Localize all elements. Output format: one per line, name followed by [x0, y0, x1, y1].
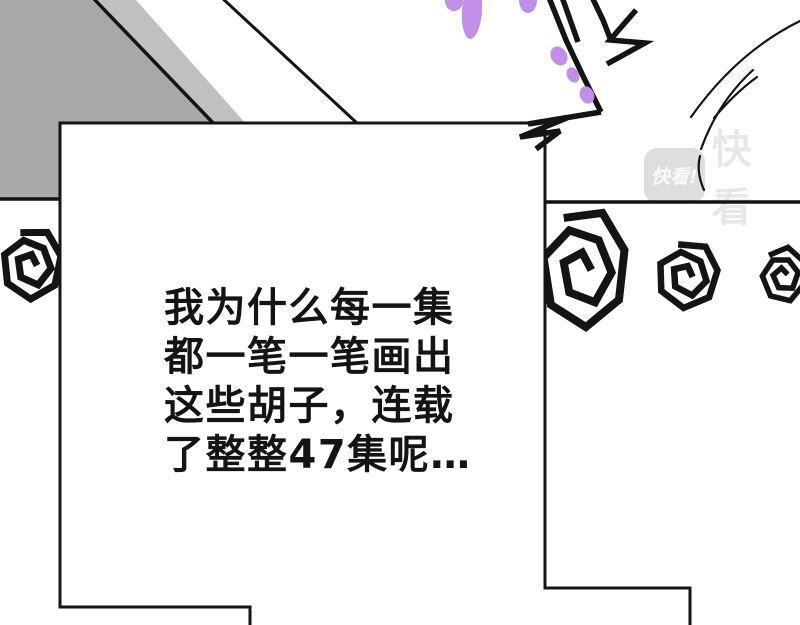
spiral-icon [1, 228, 62, 301]
spiral-icon [654, 239, 721, 313]
paint-splash [460, 0, 484, 40]
speech-line: 都一笔一笔画出 [164, 333, 474, 382]
brush-stroke-shape [520, 0, 645, 149]
spiral-icon [544, 213, 625, 327]
diagonal-panel-border [221, 0, 358, 124]
spiral-icon [758, 244, 800, 307]
speech-line: 了整整47集呢… [164, 431, 474, 480]
speech-text: 我为什么每一集 都一笔一笔画出 这些胡子，连载 了整整47集呢… [164, 284, 474, 480]
whisker-lines [691, 21, 800, 190]
speech-line: 我为什么每一集 [164, 284, 474, 333]
comic-page: 我为什么每一集 都一笔一笔画出 这些胡子，连载 了整整47集呢… 快看! 快看 [0, 0, 800, 625]
paint-splash [519, 0, 537, 13]
paint-splash [445, 0, 463, 11]
speech-line: 这些胡子，连载 [164, 382, 474, 431]
